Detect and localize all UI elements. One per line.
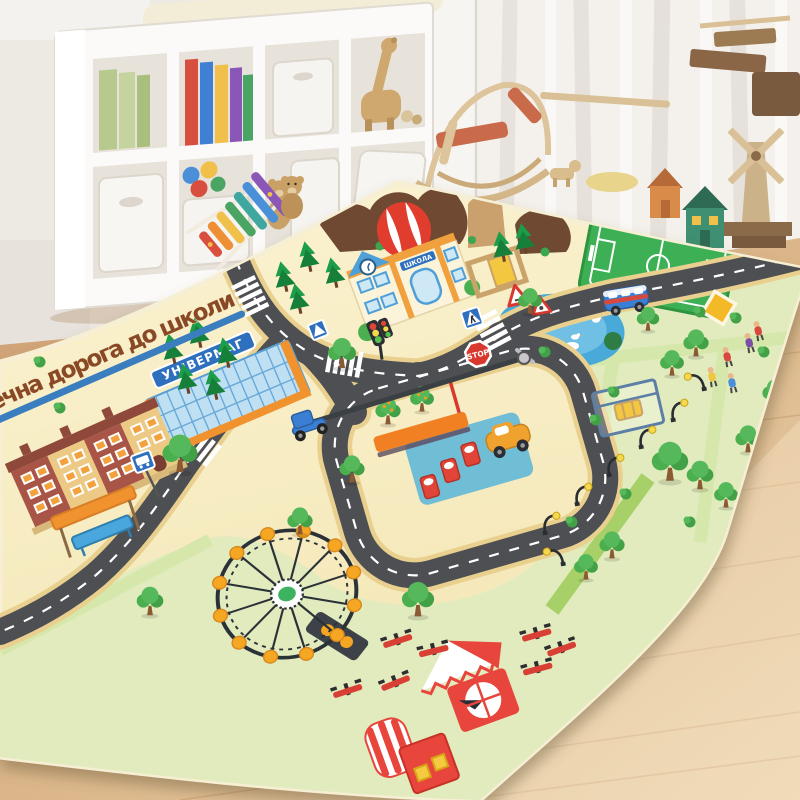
nursery-photo: ШКОЛА xyxy=(0,0,800,800)
screenshot-root: ШКОЛА xyxy=(0,0,800,800)
green-books xyxy=(99,67,150,151)
yellow-toy xyxy=(586,172,638,192)
storage-bin-top xyxy=(273,58,333,137)
storage-drawer xyxy=(99,174,163,273)
shelf-side xyxy=(55,30,85,310)
pond-bush xyxy=(604,332,622,350)
